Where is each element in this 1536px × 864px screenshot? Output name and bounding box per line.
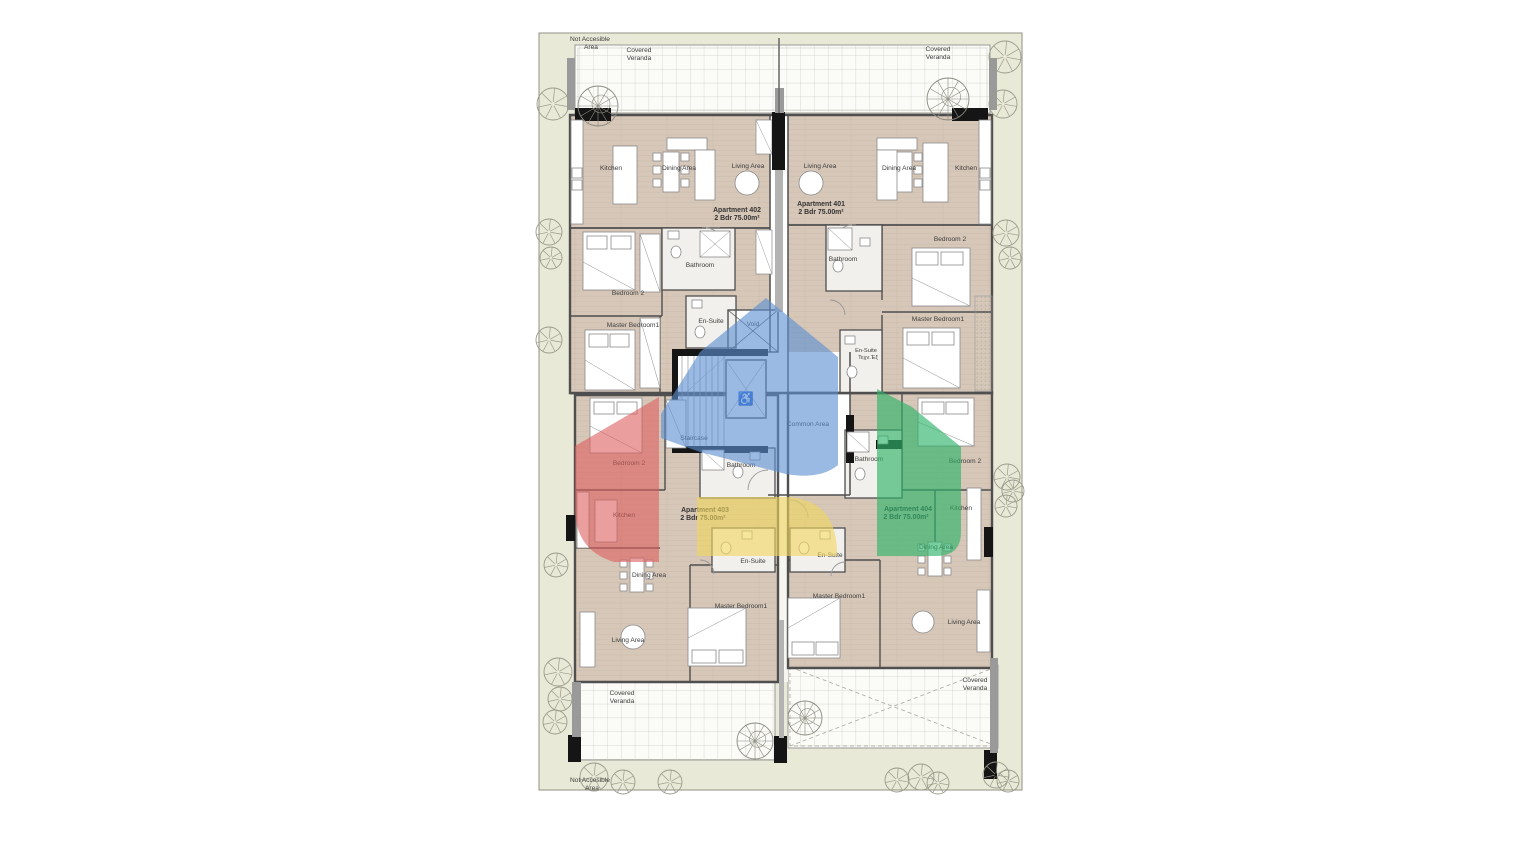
apt402-ensuite-label: En-Suite (698, 318, 724, 325)
apartment-402-spec: 2 Bdr 75.00m² (714, 215, 760, 222)
covered-veranda-bottom-right-label: Covered (963, 677, 988, 684)
not-accessible-area-bottom-label-line2: Area (585, 785, 599, 792)
covered-veranda-top-left-label-line2: Veranda (627, 55, 652, 62)
highlight-yellow-region[interactable] (697, 497, 837, 556)
hatched-shaft (975, 296, 992, 391)
apt402-dining-label: Dining Area (662, 165, 696, 172)
apartment-401-label: Apartment 401 (797, 201, 845, 208)
covered-veranda-bottom-left (578, 682, 775, 760)
covered-veranda-top-left-label: Covered (627, 47, 652, 54)
not-accessible-area-bottom-label: Not Accesible (570, 777, 610, 784)
sofa (877, 138, 917, 150)
living-table (735, 171, 759, 195)
apt401-bedroom2-label: Bedroom 2 (934, 236, 967, 243)
covered-veranda-bottom-right-label-line2: Veranda (963, 685, 988, 692)
bed (903, 328, 960, 388)
bed (788, 598, 840, 658)
apt401-kitchen-label: Kitchen (955, 165, 977, 172)
kitchen-counter (967, 488, 981, 560)
kitchen-island (923, 143, 948, 202)
covered-veranda-bottom-left-label-line2: Veranda (610, 698, 635, 705)
apartment-401-spec: 2 Bdr 75.00m² (798, 209, 844, 216)
apt401-ensuite-label: En-Suite (855, 348, 877, 354)
not-accessible-area-top-label: Not Accesible (570, 36, 610, 43)
bed (585, 330, 635, 390)
bed (912, 248, 970, 306)
spiral-stair-icon (927, 78, 969, 120)
apt401-living-label: Living Area (804, 163, 837, 170)
kitchen-island (613, 146, 637, 204)
apt403-dining-label: Dining Area (632, 572, 666, 579)
apt404-living-label: Living Area (948, 619, 981, 626)
covered-veranda-bottom-left-label: Covered (610, 690, 635, 697)
apt402-master-label: Master Bedroom1 (607, 322, 660, 329)
spiral-stair-icon (737, 723, 773, 759)
apt401-bathroom-label: Bathroom (829, 256, 858, 263)
not-accessible-area-top-label-line2: Area (584, 44, 598, 51)
apt402-bedroom2-label: Bedroom 2 (612, 290, 645, 297)
apt401-master-label: Master Bedroom1 (912, 316, 965, 323)
sofa (695, 150, 715, 200)
apt404-master-label: Master Bedroom1 (813, 593, 866, 600)
apt402-living-label: Living Area (732, 163, 765, 170)
covered-veranda-top-right-label: Covered (926, 46, 951, 53)
spiral-stair-icon (578, 86, 618, 126)
sofa (667, 138, 707, 150)
sofa (877, 150, 897, 200)
apt402-kitchen-label: Kitchen (600, 165, 622, 172)
apt403-master-label: Master Bedroom1 (715, 603, 768, 610)
wardrobe (640, 234, 660, 292)
floor-plan-drawing: ♿ (0, 0, 1536, 864)
apartment-402-label: Apartment 402 (713, 207, 761, 214)
apt401-ensuite-label-line2: Τεχν.Έξ (858, 355, 878, 361)
apt401-dining-label: Dining Area (882, 165, 916, 172)
apt403-ensuite-label: En-Suite (740, 558, 766, 565)
apt402-bathroom-label: Bathroom (686, 262, 715, 269)
sofa (580, 612, 595, 667)
floor-plan-page: ♿ (0, 0, 1536, 864)
covered-veranda-top-right-label-line2: Veranda (926, 54, 951, 61)
living-table (799, 171, 823, 195)
bed (583, 232, 635, 290)
living-table (912, 611, 934, 633)
dining-set (653, 152, 689, 192)
spiral-stair-icon (788, 701, 822, 735)
apt403-living-label: Living Area (612, 637, 645, 644)
bed (688, 608, 746, 666)
